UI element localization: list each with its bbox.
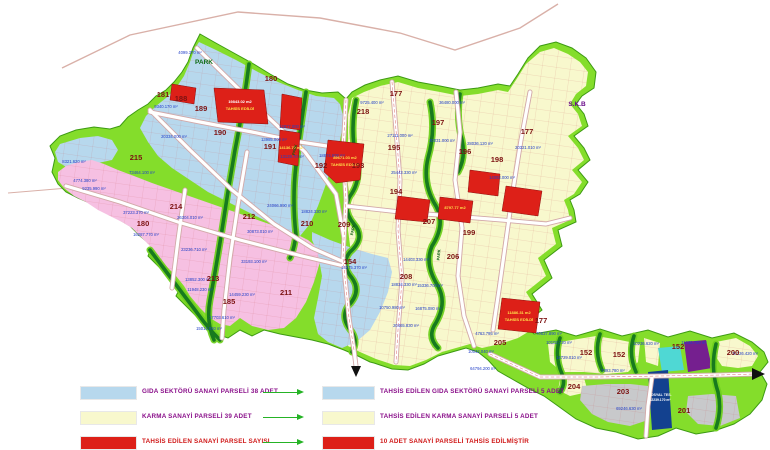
parcel-area-label: 4099.370 m² [178, 50, 202, 55]
legend-swatch-food-allocated [322, 386, 375, 400]
terrain-boundary-line [62, 4, 558, 68]
parcel-area-label: 20465.830 m² [393, 323, 419, 328]
parcel-area-label: 14729.010 m² [556, 355, 582, 360]
block-number-label: 177 [521, 127, 534, 136]
parcel-area-label: 33193.100 m² [241, 259, 267, 264]
allocated-parcel [502, 186, 542, 216]
parcel-area-label: 4763.795 m² [475, 331, 499, 336]
allocated-parcel [498, 298, 540, 333]
block-number-label: 194 [390, 187, 403, 196]
parcel-area-label: 11035.700 m² [681, 340, 707, 345]
offmap-road-line [8, 188, 68, 193]
special-label: PARK [436, 249, 442, 261]
parcel-area-label: 7893.780 m² [601, 368, 625, 373]
legend-swatch-food [80, 386, 137, 400]
parcel-area-label: 10236.620 m² [633, 341, 659, 346]
block-number-label: 210 [301, 219, 314, 228]
block-number-label: 195 [388, 143, 401, 152]
legend-label-karma: KARMA SANAYİ PARSELİ 39 ADET [142, 413, 252, 420]
block-number-label: 208 [400, 272, 413, 281]
parcel-area-label: 73464.100 m² [129, 170, 155, 175]
allocated-parcel-label: 19843.02 m2 [228, 99, 252, 104]
allocated-parcel-label: TAHSİS EDİLDİ [505, 317, 534, 322]
legend-row-food: GIDA SEKTÖRÜ SANAYİ PARSELİ 38 ADET TAHS… [0, 386, 770, 399]
legend-label-allocated-total: 10 ADET SANAYİ PARSELİ TAHSİS EDİLMİŞTİR [380, 438, 529, 445]
allocated-parcel-label: TAHSİS EDİLDİ [226, 106, 255, 111]
legend-swatch-karma-allocated [322, 411, 375, 425]
allocated-parcel [438, 197, 473, 223]
special-label: PARK [195, 59, 213, 66]
block-number-label: 152 [672, 342, 685, 351]
block-number-label: 177 [535, 316, 548, 325]
block-number-label: 218 [357, 107, 370, 116]
road-exit-arrow-down-icon [351, 366, 361, 377]
parcel-area-label: 16287.770 m² [133, 232, 159, 237]
parcel-area-label: 10750.980 m² [379, 305, 405, 310]
block-number-label: 188 [175, 94, 188, 103]
parcel-area-label: 37223.370 m² [123, 210, 149, 215]
parcel-area-label: 15336.700 m² [417, 283, 443, 288]
block-number-label: 180 [265, 74, 278, 83]
block-number-label: 209 [338, 220, 351, 229]
block-number-label: 152 [580, 348, 593, 357]
block-number-label: 154 [344, 257, 357, 266]
parcel-area-label: 28036.120 m² [467, 141, 493, 146]
parcel-area-label: 24066.990 m² [267, 203, 293, 208]
parcel-area-label: 36480.000 m² [439, 100, 465, 105]
parcel-area-label: 25443.330 m² [391, 170, 417, 175]
parcel-area-label: 9725.400 m² [360, 100, 384, 105]
parcel-area-label: 20031.000 m² [429, 138, 455, 143]
legend-arrow-icon [263, 392, 297, 393]
block-number-label: 190 [214, 128, 227, 137]
parcel-area-label: 26304.010 m² [177, 215, 203, 220]
parcel-area-label: 20321.010 m² [515, 145, 541, 150]
zoning-map-canvas: 4099.370 m²9340.170 m²20334.000 m²73464.… [0, 0, 770, 450]
legend-label-food-allocated: TAHSİS EDİLEN GIDA SEKTÖRÜ SANAYİ PARSEL… [380, 388, 564, 395]
legend-swatch-allocated [80, 436, 137, 450]
parcel-area-label: 15014.040 m² [196, 326, 222, 331]
legend-label-karma-allocated: TAHSİS EDİLEN KARMA SANAYİ PARSELİ 5 ADE… [380, 413, 538, 420]
legend-arrow-icon [263, 442, 297, 443]
block-number-label: 213 [207, 274, 220, 283]
block-number-label: 199 [463, 228, 476, 237]
block-number-label: 200 [727, 348, 740, 357]
legend-swatch-karma [80, 411, 137, 425]
legend-arrow-icon [263, 417, 297, 418]
block-number-label: 180 [137, 219, 150, 228]
parcel-area-label: 11948.230 m² [187, 287, 213, 292]
block-number-label: 185 [223, 297, 236, 306]
legend-row-allocated: TAHSİS EDİLEN SANAYİ PARSEL SAYISI 10 AD… [0, 436, 770, 449]
parcel-area-label: 64794.200 m² [470, 366, 496, 371]
block-number-label: 189 [195, 104, 208, 113]
block-number-label: 192 [315, 161, 328, 170]
parcel-area-label: 30873.010 m² [247, 229, 273, 234]
block-number-label: 181 [157, 90, 170, 99]
block-number-label: 177 [390, 89, 403, 98]
block-number-label: 152 [613, 350, 626, 359]
parcel-area-label: 18824.330 m² [301, 209, 327, 214]
parcel-area-label: 4774.380 m² [73, 178, 97, 183]
block-number-label: 215 [130, 153, 143, 162]
parcel-area-label: 8321.620 m² [62, 159, 86, 164]
block-number-label: 212 [243, 212, 256, 221]
parcel-area-label: 14403.330 m² [403, 257, 429, 262]
parcel-area-label: 27111.000 m² [387, 133, 413, 138]
block-number-label: 193 [352, 161, 365, 170]
parcel-area-label: 10102.720 m² [546, 340, 572, 345]
block-number-label: 197 [432, 118, 445, 127]
block-number-label: 191 [264, 142, 277, 151]
block-number-label: 196 [459, 147, 472, 156]
parcel-area-label: 9235.990 m² [82, 186, 106, 191]
legend-row-karma: KARMA SANAYİ PARSELİ 39 ADET TAHSİS EDİL… [0, 411, 770, 424]
zoning-map-page: 4099.370 m²9340.170 m²20334.000 m²73464.… [0, 0, 770, 450]
parcel-area-label: 12877.000 m² [279, 124, 305, 129]
allocated-parcel-label: 89671.03 m2 [333, 155, 357, 160]
parcel-area-label: 10042.040 m² [468, 349, 494, 354]
legend-label-food: GIDA SEKTÖRÜ SANAYİ PARSELİ 38 ADET [142, 388, 278, 395]
parcel-area-label: 9340.170 m² [154, 104, 178, 109]
legend-swatch-allocated-total [322, 436, 375, 450]
block-number-label: 206 [447, 252, 460, 261]
parcel-area-label: 20334.000 m² [161, 134, 187, 139]
parcel-area-label: 18834.330 m² [391, 282, 417, 287]
parcel-area-label: 14093.000 m² [489, 175, 515, 180]
block-number-label: 198 [491, 155, 504, 164]
block-number-label: 205 [494, 338, 507, 347]
allocated-parcel [468, 170, 500, 196]
allocated-parcel-label: 11886.31 m2 [507, 310, 531, 315]
allocated-parcel-label: 8797.77 m2 [444, 205, 466, 210]
legend-label-allocated: TAHSİS EDİLEN SANAYİ PARSEL SAYISI [142, 438, 270, 445]
parcel-area-label: 16875.080 m² [415, 306, 441, 311]
parcel-area-label: 17703.610 m² [209, 315, 235, 320]
parcel-area-label: 23236.710 m² [181, 247, 207, 252]
block-number-label: 207 [423, 217, 436, 226]
special-label: S.K.B [568, 101, 586, 108]
parcel-area-label: 70637.890 m² [536, 331, 562, 336]
block-number-label: 211 [280, 288, 292, 297]
block-number-label: 214 [170, 202, 183, 211]
